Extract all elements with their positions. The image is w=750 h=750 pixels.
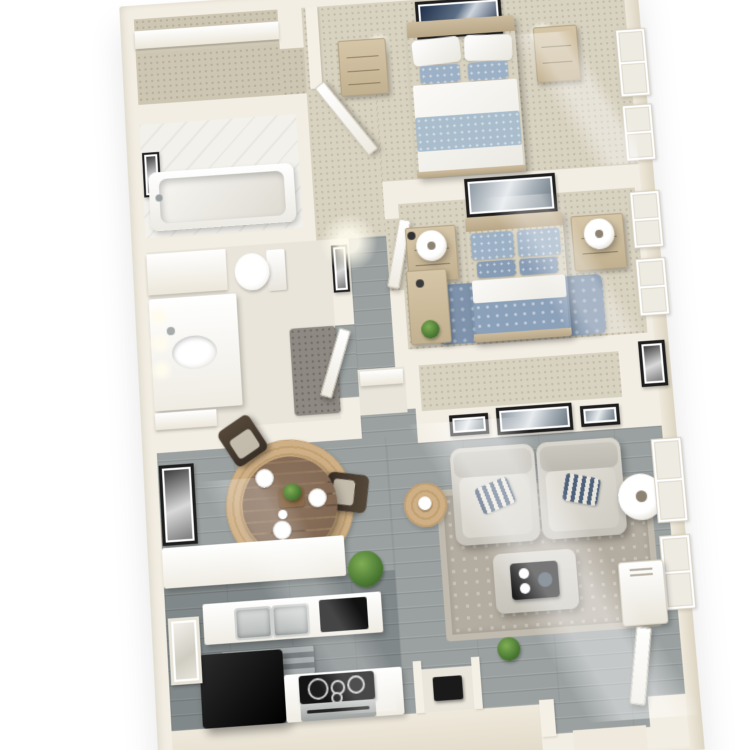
- dishwasher: [319, 597, 369, 633]
- bathtub: [148, 163, 297, 232]
- entry-nook-wall: [539, 699, 557, 737]
- niche-black-object: [433, 675, 464, 701]
- dining-wall-art: [159, 463, 198, 546]
- floor-plan-scene: WELCOME: [0, 0, 750, 750]
- kitchen-sink-right: [271, 603, 310, 638]
- bedroom-1-window-1: [615, 28, 651, 98]
- hall-small-art: [331, 244, 350, 292]
- cabinet-vent: [630, 573, 653, 577]
- bedroom-2-window-2: [635, 257, 670, 317]
- closet-doorway-floor: [280, 47, 307, 94]
- bedroom-2-wall-art: [464, 173, 558, 218]
- living-art-right: [580, 403, 621, 427]
- coffee-table: [492, 548, 579, 614]
- place-setting-3: [272, 520, 292, 540]
- bedroom-1-nightstand-right: [533, 25, 581, 84]
- armchair-left: [449, 443, 541, 546]
- kitchen-wall-art: [168, 616, 203, 685]
- armchair-right: [535, 437, 627, 540]
- kitchen-sink-left: [234, 606, 273, 641]
- bedroom-2-dresser: [406, 268, 452, 345]
- bed-throw-blanket: [415, 111, 522, 152]
- utility-cabinet: [618, 559, 669, 626]
- master-closet-floor: [419, 351, 623, 411]
- refrigerator: [199, 649, 287, 729]
- bedroom-2-bed: [465, 211, 572, 343]
- cabinet-vent: [630, 568, 653, 572]
- bedroom-2-side-art: [638, 340, 668, 387]
- living-art-center: [496, 403, 574, 436]
- living-art-left: [449, 413, 489, 437]
- centerpiece-pitcher-icon: [278, 509, 288, 519]
- coffee-table-tray: [510, 560, 560, 600]
- side-table-decor-icon: [418, 496, 432, 511]
- bedroom-1-nightstand-left: [337, 38, 389, 97]
- dresser-decor-icon: [416, 279, 425, 288]
- apartment-floor-plan: WELCOME: [119, 0, 705, 750]
- living-window-1: [650, 437, 688, 523]
- front-door-threshold: [573, 725, 648, 750]
- dresser-plant-icon: [421, 319, 441, 339]
- bedroom-1-bed: [406, 15, 526, 178]
- linen-shelf-upper: [146, 249, 227, 296]
- place-setting-2: [308, 488, 328, 508]
- bedroom-1-window-2: [622, 103, 657, 161]
- bedroom-2-window-1: [629, 190, 664, 249]
- place-setting-1: [255, 468, 275, 488]
- small-closet-shelf: [360, 369, 404, 387]
